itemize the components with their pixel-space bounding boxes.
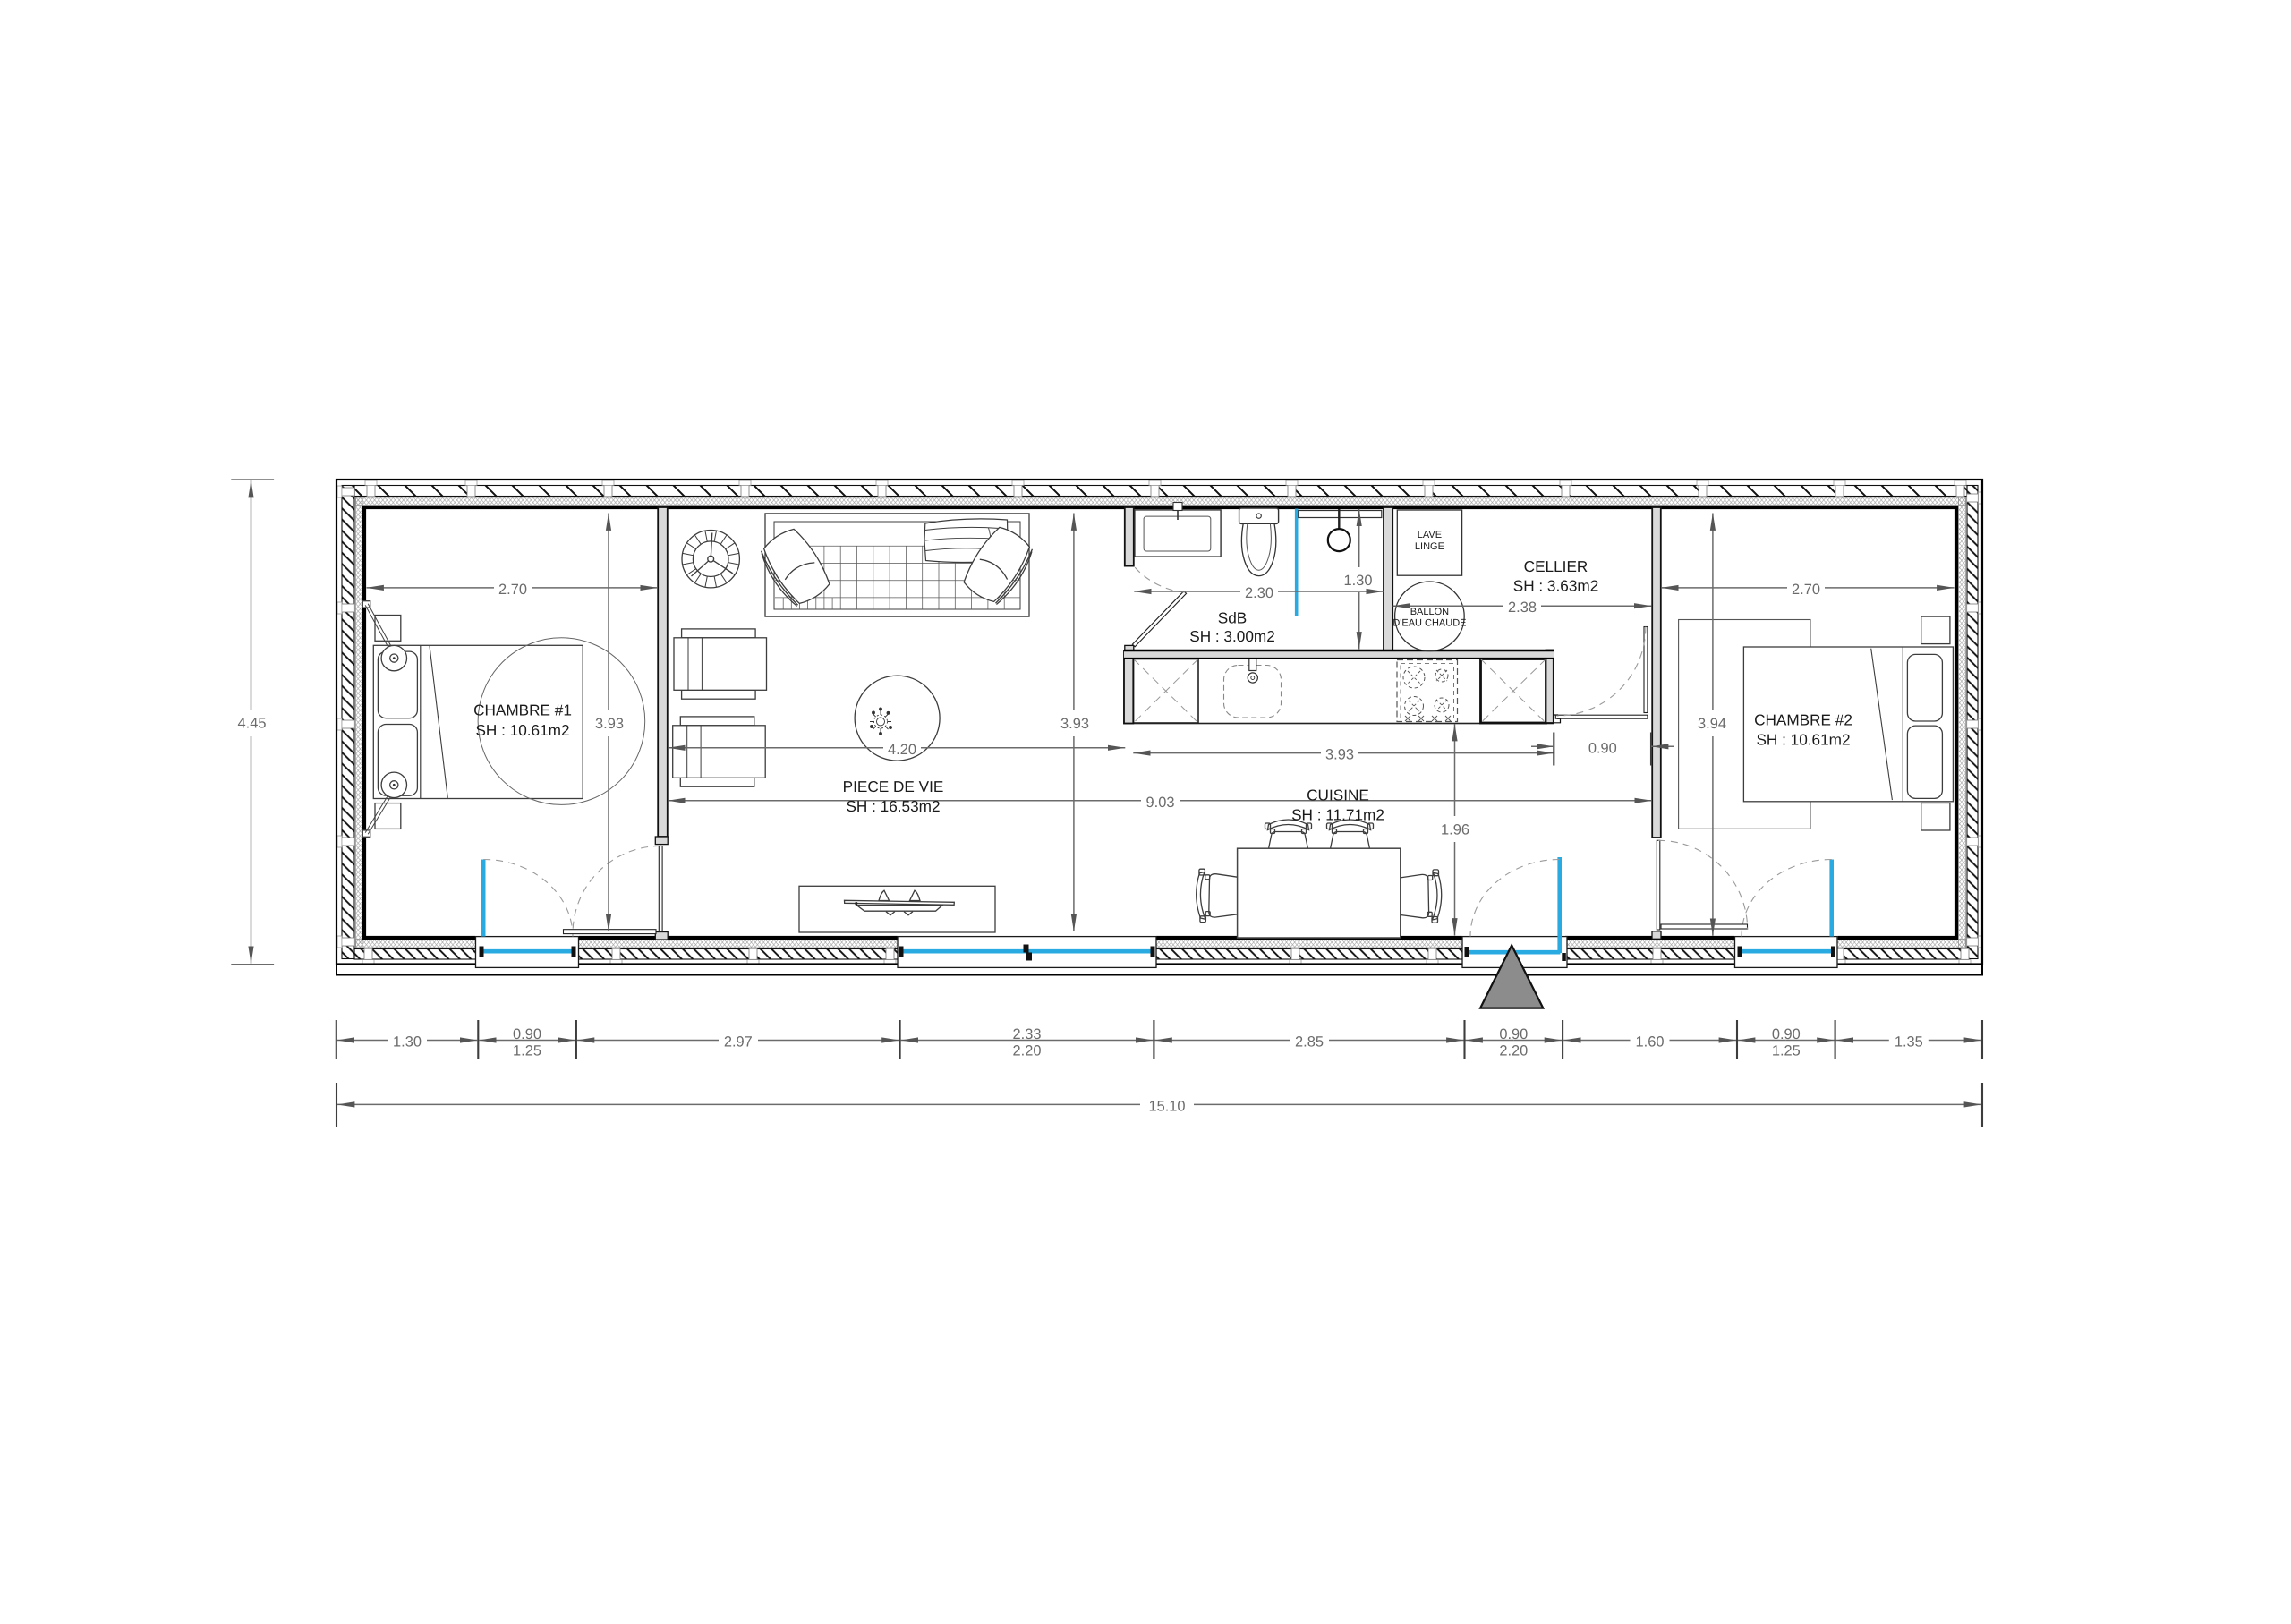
svg-text:SH : 3.00m2: SH : 3.00m2 [1189, 627, 1275, 645]
svg-text:1.30: 1.30 [393, 1034, 422, 1050]
svg-text:1.96: 1.96 [1441, 822, 1469, 838]
svg-text:0.90: 0.90 [1772, 1026, 1801, 1042]
svg-text:1.30: 1.30 [1344, 573, 1373, 589]
svg-text:1.25: 1.25 [513, 1043, 541, 1059]
svg-text:SH : 11.71m2: SH : 11.71m2 [1291, 806, 1384, 824]
svg-text:PIECE DE VIE: PIECE DE VIE [843, 778, 944, 795]
svg-text:LINGE: LINGE [1415, 541, 1444, 552]
svg-text:2.70: 2.70 [498, 582, 527, 598]
svg-text:SH : 16.53m2: SH : 16.53m2 [846, 797, 940, 815]
svg-text:4.20: 4.20 [888, 742, 916, 758]
svg-text:4.45: 4.45 [238, 716, 267, 732]
svg-text:CUISINE: CUISINE [1307, 786, 1369, 804]
svg-text:9.03: 9.03 [1146, 795, 1175, 811]
svg-text:CELLIER: CELLIER [1524, 557, 1588, 575]
svg-text:CHAMBRE #2: CHAMBRE #2 [1754, 711, 1852, 729]
svg-text:2.38: 2.38 [1508, 599, 1537, 616]
svg-text:2.70: 2.70 [1792, 582, 1820, 598]
svg-text:D'EAU CHAUDE: D'EAU CHAUDE [1392, 618, 1466, 629]
svg-text:LAVE: LAVE [1418, 530, 1442, 540]
svg-text:2.97: 2.97 [724, 1034, 753, 1050]
svg-text:2.20: 2.20 [1499, 1043, 1528, 1059]
svg-text:2.33: 2.33 [1013, 1026, 1042, 1042]
svg-text:SH : 10.61m2: SH : 10.61m2 [475, 721, 569, 739]
svg-text:2.20: 2.20 [1013, 1043, 1042, 1059]
svg-text:CHAMBRE #1: CHAMBRE #1 [473, 701, 572, 719]
svg-text:SH : 10.61m2: SH : 10.61m2 [1756, 731, 1850, 749]
svg-text:BALLON: BALLON [1410, 607, 1449, 617]
svg-text:2.85: 2.85 [1295, 1034, 1324, 1050]
svg-text:0.90: 0.90 [1588, 740, 1617, 756]
svg-text:3.93: 3.93 [1325, 747, 1354, 763]
svg-text:0.90: 0.90 [513, 1026, 541, 1042]
svg-text:3.93: 3.93 [1060, 716, 1089, 732]
svg-text:1.60: 1.60 [1636, 1034, 1665, 1050]
svg-text:0.90: 0.90 [1499, 1026, 1528, 1042]
svg-text:SH : 3.63m2: SH : 3.63m2 [1513, 577, 1599, 595]
svg-text:3.93: 3.93 [595, 716, 624, 732]
svg-text:2.30: 2.30 [1245, 585, 1273, 601]
svg-text:1.35: 1.35 [1895, 1034, 1923, 1050]
svg-text:3.94: 3.94 [1698, 716, 1726, 732]
svg-text:1.25: 1.25 [1772, 1043, 1801, 1059]
svg-text:SdB: SdB [1218, 609, 1248, 627]
svg-text:15.10: 15.10 [1148, 1098, 1185, 1114]
